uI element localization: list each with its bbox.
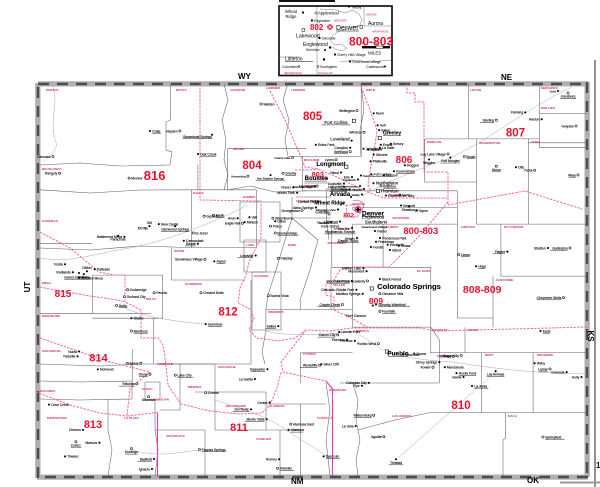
svg-text:Ignacio: Ignacio [139, 467, 150, 471]
svg-text:Stratton: Stratton [534, 246, 546, 250]
svg-text:Monument: Monument [348, 270, 364, 274]
svg-text:Fort Carson: Fort Carson [346, 314, 366, 318]
svg-text:8: 8 [388, 41, 390, 45]
svg-text:SAN MIGUEL: SAN MIGUEL [42, 349, 62, 353]
svg-text:Mancos: Mancos [85, 441, 97, 445]
svg-text:CROWLEY: CROWLEY [432, 328, 449, 332]
svg-text:Swink: Swink [452, 375, 461, 379]
svg-text:Nunn: Nunn [376, 112, 384, 116]
svg-text:GUNNISON: GUNNISON [185, 282, 202, 286]
svg-text:ELBERT: ELBERT [386, 225, 398, 229]
svg-text:Canon City: Canon City [319, 333, 336, 337]
svg-text:4: 4 [375, 41, 377, 45]
svg-text:LA PLATA: LA PLATA [124, 416, 139, 420]
svg-text:UT: UT [23, 282, 32, 293]
svg-text:Hudson: Hudson [386, 173, 398, 177]
svg-text:San Luis: San Luis [326, 455, 339, 459]
svg-text:Meeker: Meeker [131, 176, 143, 180]
svg-text:Eads: Eads [543, 329, 551, 333]
svg-text:Cedaredge: Cedaredge [130, 288, 147, 292]
svg-text:Castlewood: Castlewood [366, 65, 384, 69]
svg-text:813: 813 [84, 419, 102, 431]
svg-text:Wiley: Wiley [537, 362, 546, 366]
svg-text:Sheridan: Sheridan [306, 48, 320, 52]
svg-text:Towaoc: Towaoc [67, 455, 79, 459]
svg-text:Olney Springs: Olney Springs [416, 361, 438, 365]
svg-text:MESA: MESA [42, 281, 52, 285]
svg-text:Olathe: Olathe [134, 317, 144, 321]
svg-text:WASHINGTON: WASHINGTON [479, 141, 501, 145]
svg-text:CHEYENNE: CHEYENNE [496, 278, 513, 282]
svg-text:Wray: Wray [568, 173, 576, 177]
svg-text:Salida: Salida [267, 324, 277, 328]
svg-text:Cimarron Hills: Cimarron Hills [382, 292, 404, 296]
svg-text:Elbert: Elbert [392, 248, 401, 252]
svg-text:DOLORES: DOLORES [40, 389, 55, 393]
svg-text:Ridgway: Ridgway [126, 362, 139, 366]
svg-text:MONTEZUMA: MONTEZUMA [47, 416, 68, 420]
svg-text:Colorado Springs: Colorado Springs [377, 282, 441, 291]
svg-text:Highlands Ranch: Highlands Ranch [325, 229, 355, 234]
svg-text:Westcliffe: Westcliffe [303, 364, 318, 368]
svg-text:Glendale: Glendale [322, 37, 336, 41]
svg-text:Manzanola: Manzanola [447, 366, 464, 370]
svg-text:JEFFERSON: JEFFERSON [284, 71, 302, 75]
svg-text:Byers: Byers [419, 209, 428, 213]
svg-text:Nederland: Nederland [299, 184, 315, 188]
svg-text:1: 1 [596, 461, 600, 470]
svg-text:WELD: WELD [366, 88, 376, 92]
svg-text:ARAPAHOE: ARAPAHOE [392, 216, 409, 220]
svg-text:Monte Vista: Monte Vista [247, 418, 265, 422]
svg-text:La Garita: La Garita [239, 377, 253, 381]
svg-text:Longmont: Longmont [316, 162, 345, 168]
svg-text:Brighton: Brighton [383, 184, 396, 188]
svg-text:Redlands: Redlands [56, 271, 71, 275]
svg-text:CHAFFEE: CHAFFEE [254, 274, 269, 278]
svg-text:Creede: Creede [208, 391, 219, 395]
svg-text:Holly: Holly [572, 375, 580, 379]
svg-text:GARFIELD: GARFIELD [42, 219, 59, 223]
svg-text:Naturita: Naturita [63, 355, 75, 359]
svg-text:Boone: Boone [417, 352, 427, 356]
svg-text:Rangely: Rangely [45, 172, 58, 176]
svg-text:LAKE: LAKE [246, 243, 254, 247]
svg-text:DENVER: DENVER [352, 202, 366, 206]
svg-text:Telluride: Telluride [122, 382, 135, 386]
svg-text:Fort Morgan: Fort Morgan [441, 159, 460, 163]
svg-text:Fairplay: Fairplay [281, 257, 293, 261]
svg-text:Lake City: Lake City [177, 373, 191, 377]
svg-text:814: 814 [89, 353, 108, 365]
svg-text:LOGAN: LOGAN [470, 88, 482, 92]
svg-text:ARCHULETA: ARCHULETA [166, 434, 186, 438]
svg-text:RIO BLANCO: RIO BLANCO [42, 167, 62, 171]
svg-text:Black Forest: Black Forest [382, 277, 401, 281]
svg-text:EL PASO: EL PASO [417, 269, 431, 273]
svg-text:La Salle: La Salle [382, 146, 394, 150]
svg-text:Parachute: Parachute [110, 238, 126, 242]
svg-text:Fleming: Fleming [511, 111, 523, 115]
svg-text:Montrose: Montrose [134, 329, 148, 333]
svg-text:812: 812 [218, 307, 237, 319]
svg-text:Windsor: Windsor [349, 131, 362, 135]
svg-text:Dolores: Dolores [69, 428, 81, 432]
svg-text:Penrose: Penrose [340, 339, 353, 343]
svg-text:802: 802 [343, 213, 354, 220]
svg-text:Fowler: Fowler [421, 366, 432, 370]
svg-text:Rocky Ford: Rocky Ford [459, 371, 476, 375]
svg-text:Hayden: Hayden [166, 129, 178, 133]
svg-text:805: 805 [303, 111, 323, 123]
svg-text:Eagle-Vail: Eagle-Vail [225, 222, 240, 226]
svg-text:PHILLIPS: PHILLIPS [541, 106, 555, 110]
svg-text:Aguilar: Aguilar [371, 435, 382, 439]
svg-text:Silverton: Silverton [142, 398, 155, 402]
svg-text:Ridge: Ridge [286, 14, 298, 19]
svg-text:Avon: Avon [228, 217, 236, 221]
svg-text:Ken Caryl: Ken Caryl [321, 224, 339, 229]
svg-text:MOFFAT: MOFFAT [46, 88, 59, 92]
svg-text:MINERAL: MINERAL [188, 385, 202, 389]
svg-text:LARIMER: LARIMER [291, 88, 306, 92]
svg-text:Westminster: Westminster [341, 184, 358, 188]
svg-text:Air Force Academy: Air Force Academy [337, 279, 366, 283]
svg-text:Crested Butte: Crested Butte [203, 291, 224, 295]
svg-text:Fraser: Fraser [281, 186, 292, 190]
svg-text:Thornton: Thornton [380, 188, 399, 193]
svg-text:802: 802 [310, 23, 324, 32]
svg-text:Central City: Central City [298, 200, 316, 204]
svg-text:Strasburg: Strasburg [402, 208, 417, 212]
svg-text:816: 816 [144, 168, 166, 183]
svg-text:Grand Lake: Grand Lake [275, 156, 291, 160]
svg-text:Frisco: Frisco [273, 224, 282, 228]
svg-text:Alamosa: Alamosa [291, 428, 304, 432]
svg-text:Steamboat Springs: Steamboat Springs [183, 135, 212, 139]
svg-text:MORGAN: MORGAN [427, 140, 442, 144]
svg-text:Craig: Craig [152, 129, 160, 133]
svg-text:EAGLE: EAGLE [193, 191, 204, 195]
svg-text:HUERFANO: HUERFANO [329, 388, 347, 392]
svg-text:DOUGLAS: DOUGLAS [318, 71, 333, 75]
svg-text:CUSTER: CUSTER [303, 352, 316, 356]
svg-text:803: 803 [311, 170, 324, 179]
svg-text:Dove Creek: Dove Creek [51, 403, 69, 407]
svg-text:Winter Park: Winter Park [277, 191, 295, 195]
svg-text:Fort Collins: Fort Collins [324, 120, 348, 125]
svg-text:BENT: BENT [485, 353, 494, 357]
svg-text:Sterling: Sterling [483, 119, 495, 123]
svg-text:Trinidad: Trinidad [390, 461, 402, 465]
svg-text:WY: WY [238, 72, 252, 81]
svg-text:YUMA: YUMA [531, 140, 541, 144]
svg-text:Orchard Mesa: Orchard Mesa [81, 276, 103, 280]
svg-text:HINSDALE: HINSDALE [157, 362, 173, 366]
svg-text:808-809: 808-809 [463, 284, 502, 296]
svg-text:Julesburg: Julesburg [561, 95, 576, 99]
svg-text:MILES: MILES [368, 51, 381, 56]
svg-text:Snowmass Village: Snowmass Village [175, 258, 203, 262]
svg-text:COSTILLA: COSTILLA [317, 416, 333, 420]
svg-text:Granada: Granada [551, 370, 564, 374]
svg-text:Clifton: Clifton [82, 266, 92, 270]
svg-text:Georgetown: Georgetown [281, 209, 300, 213]
svg-text:Center: Center [257, 401, 268, 405]
svg-text:DENVER: DENVER [334, 19, 347, 23]
svg-text:Log Lane Village: Log Lane Village [421, 152, 446, 156]
svg-text:OK: OK [527, 476, 539, 485]
svg-text:Rifle: Rifle [141, 226, 148, 230]
svg-text:ADAMS: ADAMS [366, 13, 377, 17]
svg-text:TELLER: TELLER [333, 283, 346, 287]
svg-text:Silver Cliff: Silver Cliff [324, 363, 339, 367]
svg-text:La Junta: La Junta [474, 384, 487, 388]
svg-text:Niwot: Niwot [330, 171, 339, 175]
svg-text:Ault: Ault [380, 124, 386, 128]
svg-text:PROWERS: PROWERS [537, 353, 553, 357]
svg-text:Dacono: Dacono [363, 174, 374, 178]
svg-text:MONTROSE: MONTROSE [42, 314, 60, 318]
svg-text:Yuma: Yuma [524, 169, 533, 173]
svg-text:Limon: Limon [461, 253, 470, 257]
svg-text:Welby: Welby [352, 193, 361, 197]
svg-text:Southglenn: Southglenn [365, 220, 388, 225]
svg-text:Derby: Derby [402, 193, 411, 197]
svg-text:Loveland: Loveland [330, 137, 350, 143]
svg-text:Romeo: Romeo [266, 458, 277, 462]
svg-text:El Jebel: El Jebel [195, 231, 207, 235]
svg-text:La Veta: La Veta [342, 424, 354, 428]
svg-text:SUMMIT: SUMMIT [243, 195, 255, 199]
svg-text:Vail: Vail [252, 216, 258, 220]
svg-text:0: 0 [362, 41, 364, 45]
svg-text:Wiggins: Wiggins [423, 161, 435, 165]
svg-text:Bayfield: Bayfield [140, 457, 152, 461]
svg-text:Delta: Delta [119, 304, 127, 308]
svg-text:Estes Park: Estes Park [318, 143, 335, 147]
svg-text:SAN JUAN: SAN JUAN [153, 398, 170, 402]
svg-text:Lincoln Park: Lincoln Park [342, 330, 361, 334]
svg-text:811: 811 [230, 422, 248, 434]
svg-text:Sugar City: Sugar City [443, 354, 459, 358]
svg-text:806: 806 [396, 155, 413, 166]
svg-text:Las Animas: Las Animas [487, 373, 505, 377]
svg-text:Kiowa: Kiowa [401, 244, 410, 248]
svg-text:Cheyenne Wells: Cheyenne Wells [537, 296, 562, 300]
svg-text:Durango: Durango [125, 450, 138, 454]
svg-text:Aspen: Aspen [217, 260, 227, 264]
svg-text:Aurora: Aurora [368, 21, 383, 27]
svg-text:Platteville: Platteville [373, 160, 388, 164]
svg-text:Buena Vista: Buena Vista [270, 294, 288, 298]
svg-text:Walden: Walden [263, 102, 274, 106]
svg-text:Breckenridge: Breckenridge [277, 231, 297, 235]
svg-text:Saguache: Saguache [250, 368, 265, 372]
svg-text:Fruita: Fruita [54, 263, 63, 267]
svg-text:ROUTT: ROUTT [176, 88, 187, 92]
svg-text:815: 815 [55, 289, 72, 300]
svg-text:800-803: 800-803 [403, 226, 438, 237]
svg-text:Arvada: Arvada [330, 192, 351, 198]
svg-text:SAGUACHE: SAGUACHE [218, 365, 236, 369]
svg-text:Hot Sulphur Springs: Hot Sulphur Springs [257, 176, 284, 180]
svg-text:Holyoke: Holyoke [562, 124, 574, 128]
svg-text:Keenesburg: Keenesburg [396, 170, 414, 174]
svg-text:KIT CARSON: KIT CARSON [504, 225, 524, 229]
svg-text:Akron: Akron [492, 168, 501, 172]
svg-text:LAS ANIMAS: LAS ANIMAS [392, 414, 411, 418]
svg-text:Glenwood Springs: Glenwood Springs [161, 228, 189, 232]
svg-text:Lakewood: Lakewood [296, 34, 320, 40]
svg-text:Applewood: Applewood [318, 11, 339, 16]
svg-text:804: 804 [242, 160, 262, 172]
svg-text:Pagosa Springs: Pagosa Springs [202, 448, 226, 452]
svg-text:Hugo: Hugo [478, 265, 486, 269]
svg-text:Greenwood Village: Greenwood Village [352, 60, 381, 64]
svg-text:Cortez: Cortez [71, 443, 81, 447]
svg-text:Basalt: Basalt [186, 242, 195, 246]
svg-text:Wellington: Wellington [339, 109, 355, 113]
svg-text:Antonito: Antonito [280, 467, 293, 471]
svg-text:PITKIN: PITKIN [174, 249, 185, 253]
svg-text:Welby: Welby [352, 6, 362, 10]
svg-text:NM: NM [291, 477, 304, 486]
svg-text:KS: KS [586, 330, 595, 342]
svg-text:Columbine: Columbine [282, 65, 298, 69]
svg-text:FREMONT: FREMONT [268, 310, 283, 314]
svg-text:Southglenn: Southglenn [320, 65, 337, 69]
svg-text:Kremmling: Kremmling [231, 174, 246, 178]
svg-text:809: 809 [369, 296, 383, 306]
svg-text:LINCOLN: LINCOLN [461, 225, 476, 229]
svg-text:Gunnison: Gunnison [208, 322, 223, 326]
svg-text:Nucla: Nucla [68, 350, 77, 354]
svg-text:Franktown: Franktown [378, 240, 394, 244]
svg-text:BACA: BACA [508, 414, 518, 418]
svg-text:KIOWA: KIOWA [468, 328, 479, 332]
svg-text:Minturn: Minturn [247, 221, 258, 225]
svg-text:JACKSON: JACKSON [230, 88, 246, 92]
svg-text:Fondis: Fondis [373, 245, 383, 249]
svg-text:Springfield: Springfield [545, 435, 561, 439]
svg-text:Paonia: Paonia [156, 291, 167, 295]
svg-text:Parker: Parker [377, 229, 388, 233]
svg-text:Granby: Granby [285, 172, 296, 176]
svg-text:Berthoud: Berthoud [334, 150, 348, 154]
svg-text:Kersey: Kersey [393, 142, 404, 146]
svg-text:Ovid: Ovid [550, 89, 557, 93]
svg-text:PARK: PARK [288, 243, 297, 247]
svg-text:Silt: Silt [147, 221, 152, 225]
svg-text:Campion: Campion [334, 146, 348, 150]
svg-text:Norwood: Norwood [100, 368, 114, 372]
svg-text:Flagler: Flagler [495, 250, 506, 254]
svg-text:Walsenburg: Walsenburg [354, 414, 372, 418]
svg-text:Frederick: Frederick [343, 178, 356, 182]
svg-text:Cripple Creek: Cripple Creek [319, 303, 340, 307]
svg-text:Fountain: Fountain [382, 310, 395, 314]
svg-text:Orchard City: Orchard City [127, 295, 146, 299]
svg-text:Ouray: Ouray [139, 373, 149, 377]
svg-text:OURAY: OURAY [142, 387, 154, 391]
svg-text:ALAMOSA: ALAMOSA [269, 404, 285, 408]
svg-text:Oak Creek: Oak Creek [200, 152, 217, 156]
svg-text:Brush: Brush [467, 155, 476, 159]
svg-text:NE: NE [501, 73, 513, 82]
svg-text:Sedalia: Sedalia [345, 236, 355, 240]
svg-text:Palisade: Palisade [97, 268, 110, 272]
svg-text:GRAND: GRAND [233, 147, 245, 151]
svg-text:Gypsum: Gypsum [206, 215, 219, 219]
svg-text:Dillon: Dillon [277, 220, 286, 224]
svg-text:Alamosa East: Alamosa East [293, 422, 314, 426]
svg-text:807: 807 [506, 128, 525, 140]
svg-text:Dinosaur: Dinosaur [37, 155, 51, 159]
svg-text:DELTA: DELTA [146, 297, 157, 301]
svg-text:LARIMER: LARIMER [266, 86, 281, 90]
svg-text:Cherry Hills Village: Cherry Hills Village [337, 53, 366, 57]
svg-text:Del Norte: Del Norte [234, 408, 248, 412]
svg-text:Burlington: Burlington [553, 246, 568, 250]
svg-text:Leadville: Leadville [240, 254, 253, 258]
svg-text:Eaton: Eaton [381, 128, 390, 132]
svg-text:Manitou Springs: Manitou Springs [336, 292, 361, 296]
svg-text:Haxtun: Haxtun [529, 118, 540, 122]
svg-text:Rye: Rye [354, 384, 360, 388]
svg-text:Gilcrest: Gilcrest [376, 153, 388, 157]
svg-text:Pueblo West: Pueblo West [357, 342, 376, 346]
svg-text:CONEJOS: CONEJOS [256, 437, 271, 441]
svg-text:Lamar: Lamar [538, 367, 548, 371]
svg-text:810: 810 [451, 400, 470, 412]
svg-text:ARAPAHOE: ARAPAHOE [372, 30, 388, 34]
svg-text:Wheat Ridge: Wheat Ridge [315, 200, 345, 206]
